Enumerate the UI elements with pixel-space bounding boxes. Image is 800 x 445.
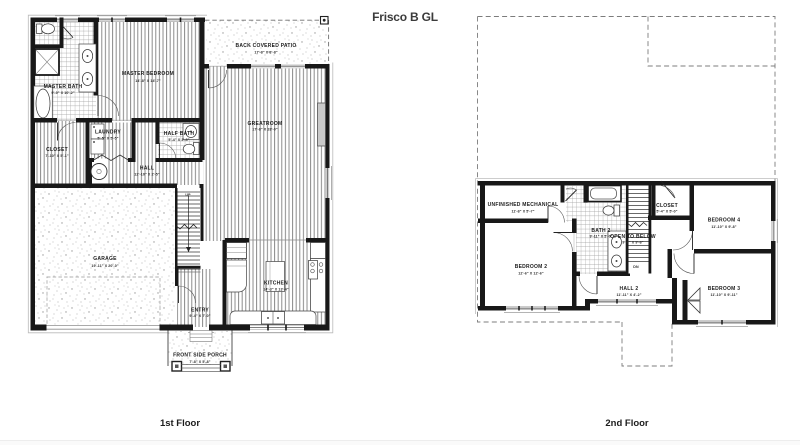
svg-text:12'-10" X 2'-5": 12'-10" X 2'-5" — [134, 173, 160, 177]
svg-text:11'-8" X 5'-7": 11'-8" X 5'-7" — [511, 210, 534, 214]
svg-text:CLOSET: CLOSET — [656, 203, 678, 209]
svg-text:HALL 2: HALL 2 — [620, 286, 639, 292]
svg-text:BEDROOM 4: BEDROOM 4 — [708, 218, 741, 224]
svg-text:11'-10" X 9'-8": 11'-10" X 9'-8" — [711, 225, 736, 229]
svg-text:ENTRY: ENTRY — [191, 308, 209, 314]
svg-text:HALF BATH: HALF BATH — [164, 131, 195, 137]
svg-text:7'-10" X 5'-1": 7'-10" X 5'-1" — [45, 154, 68, 158]
svg-text:Frisco B GL: Frisco B GL — [372, 10, 438, 24]
svg-text:19'-11" X 20'-0": 19'-11" X 20'-0" — [91, 264, 118, 268]
svg-text:11'-11" X 4'-2": 11'-11" X 4'-2" — [617, 293, 642, 297]
svg-text:OPEN TO BELOW: OPEN TO BELOW — [610, 234, 656, 240]
svg-text:5'-4" X 3'-5": 5'-4" X 3'-5" — [168, 138, 189, 142]
svg-text:LAUNDRY: LAUNDRY — [95, 130, 121, 136]
svg-text:GARAGE: GARAGE — [93, 256, 117, 262]
svg-text:7'-8" X 5'-8": 7'-8" X 5'-8" — [189, 360, 210, 364]
svg-text:KITCHEN: KITCHEN — [264, 281, 288, 287]
svg-text:CLOSET: CLOSET — [46, 147, 68, 153]
svg-text:1st Floor: 1st Floor — [160, 418, 200, 429]
svg-text:MASTER BATH: MASTER BATH — [44, 84, 83, 90]
svg-text:17'-8" X 8'-8": 17'-8" X 8'-8" — [254, 51, 277, 55]
svg-text:HALL: HALL — [140, 166, 154, 172]
svg-text:2nd Floor: 2nd Floor — [605, 418, 649, 429]
svg-text:11'-10" X 9'-11": 11'-10" X 9'-11" — [710, 293, 737, 297]
svg-text:GREATROOM: GREATROOM — [248, 121, 283, 127]
svg-text:FRONT SIDE PORCH: FRONT SIDE PORCH — [173, 353, 227, 359]
svg-text:12'-6" X 12'-6": 12'-6" X 12'-6" — [518, 272, 544, 276]
svg-text:5'-4" X 5'-0": 5'-4" X 5'-0" — [656, 210, 677, 214]
svg-text:14'-3" X 13'-4": 14'-3" X 13'-4" — [263, 288, 289, 292]
svg-text:DN: DN — [633, 265, 639, 269]
svg-text:9'-4" X 7'-0": 9'-4" X 7'-0" — [189, 314, 210, 318]
svg-text:MASTER BEDROOM: MASTER BEDROOM — [122, 71, 174, 77]
svg-text:BEDROOM 3: BEDROOM 3 — [708, 286, 741, 292]
svg-text:BATH 2: BATH 2 — [591, 228, 610, 234]
svg-text:9'-0" X 10'-2": 9'-0" X 10'-2" — [51, 91, 74, 95]
svg-text:14'-8" X 14'-7": 14'-8" X 14'-7" — [135, 79, 161, 83]
svg-text:UNFINISHED MECHANICAL: UNFINISHED MECHANICAL — [488, 202, 559, 208]
svg-text:BACK COVERED PATIO: BACK COVERED PATIO — [236, 43, 297, 49]
svg-text:17'-8" X 28'-0": 17'-8" X 28'-0" — [252, 128, 278, 132]
svg-text:BEDROOM 2: BEDROOM 2 — [515, 264, 548, 270]
svg-text:9'-6" X 9'-8": 9'-6" X 9'-8" — [622, 241, 643, 245]
svg-text:5'-5" X 5'-5": 5'-5" X 5'-5" — [97, 137, 118, 141]
